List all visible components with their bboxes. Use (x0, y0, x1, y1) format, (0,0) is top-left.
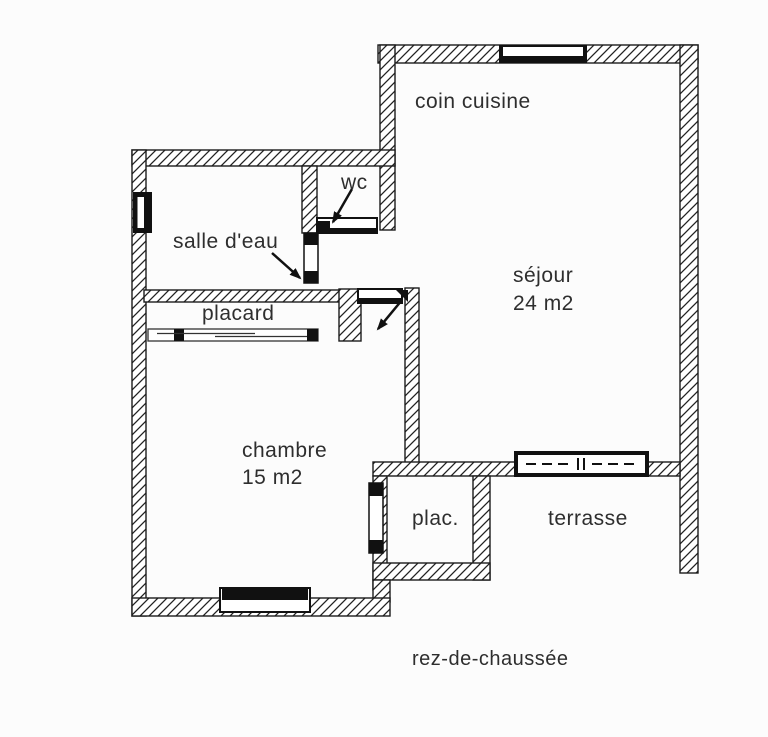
window-sejour-top (499, 45, 587, 63)
room-label-terrasse: terrasse (548, 508, 628, 529)
arrow-salledeau-door (272, 253, 300, 278)
wall-placard-top (144, 290, 350, 302)
door-plac (369, 483, 383, 553)
wall-top-left-wing (132, 150, 395, 166)
window-chambre-bottom (220, 588, 310, 612)
arrow-chambre-door-swing (378, 300, 402, 329)
room-label-chambre: chambre (242, 440, 327, 461)
room-label-placard: placard (202, 303, 274, 324)
room-label-sejour: séjour (513, 265, 573, 286)
wall-right (680, 45, 698, 573)
floor-title: rez-de-chaussée (412, 649, 568, 669)
room-label-coin-cuisine: coin cuisine (415, 91, 531, 112)
wall-terrasse-top-left (373, 462, 515, 476)
wall-salledeau-right (302, 166, 317, 233)
window-salledeau-left (133, 192, 152, 233)
room-area-sejour: 24 m2 (513, 293, 574, 314)
window-terrasse-sliding (516, 453, 647, 475)
room-label-plac: plac. (412, 508, 459, 529)
room-label-wc: wc (341, 172, 368, 193)
floor-plan: coin cuisine séjour 24 m2 wc salle d'eau… (0, 0, 768, 737)
closet-doors-placard (148, 329, 318, 341)
room-label-salle-deau: salle d'eau (173, 231, 278, 252)
wall-sejour-left (380, 45, 395, 230)
room-area-chambre: 15 m2 (242, 467, 303, 488)
door-wc (317, 218, 377, 233)
wall-chambre-sejour (405, 288, 419, 463)
door-salledeau (304, 233, 318, 283)
wall-plac-bottom (373, 563, 490, 580)
floor-plan-drawing (0, 0, 768, 737)
wall-terrasse-top-right (648, 462, 680, 476)
